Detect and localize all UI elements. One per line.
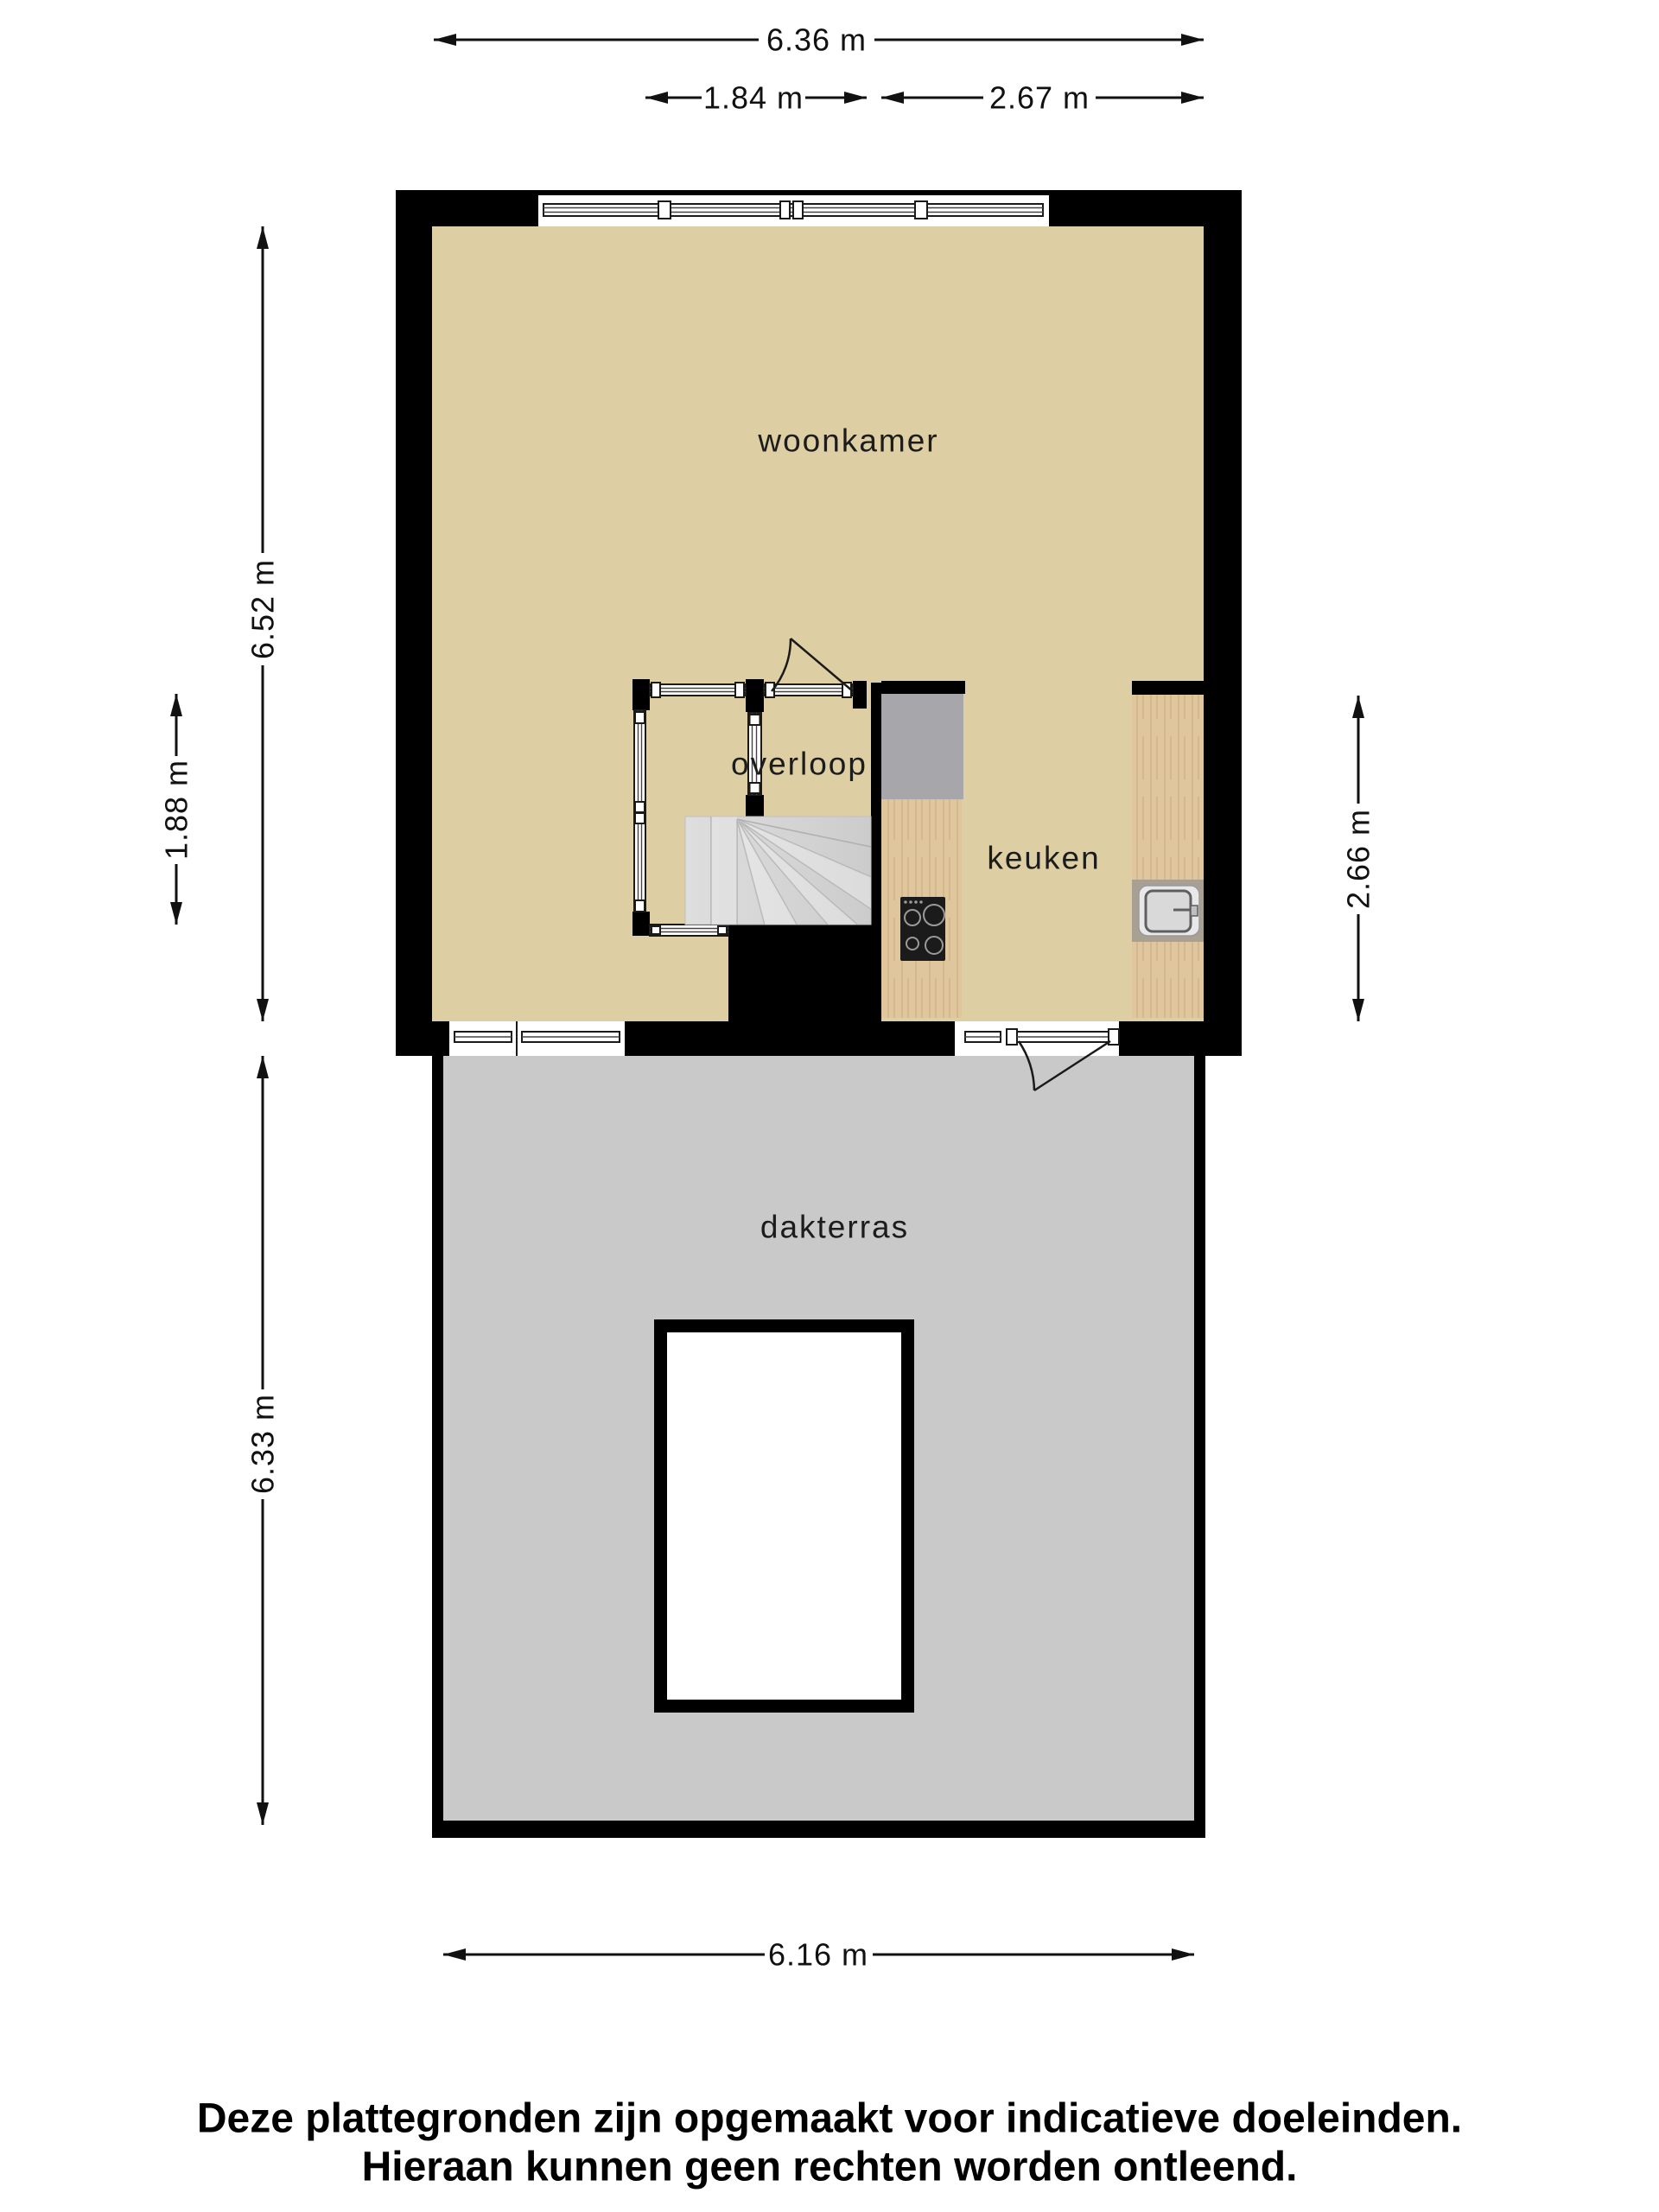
railing-post <box>853 681 867 709</box>
tall-cabinet <box>881 694 963 799</box>
dim-right-keuken: 2.66 m <box>1341 696 1376 1021</box>
dim-bottom-terrace: 6.16 m <box>443 1937 1194 1973</box>
window-mullion <box>780 201 790 219</box>
dim-left-overloop: 1.88 m <box>159 694 194 925</box>
window-mullion <box>658 201 671 219</box>
floorplan-page: woonkamer overloop keuken dakterras 6.36… <box>0 0 1659 2212</box>
staircase <box>685 817 871 925</box>
overloop-glass-door <box>764 684 853 696</box>
dim-label: 6.33 m <box>245 1394 281 1494</box>
dim-label: 6.36 m <box>766 22 867 58</box>
terrace-void <box>667 1332 901 1700</box>
window-mullion <box>915 201 927 219</box>
dim-top-keuken: 2.67 m <box>881 80 1204 116</box>
disclaimer-line-2: Hieraan kunnen geen rechten worden ontle… <box>362 2145 1298 2190</box>
floorplan-canvas: woonkamer overloop keuken dakterras 6.36… <box>0 0 1659 2212</box>
roof-terrace <box>432 1052 1205 1838</box>
dim-top-total: 6.36 m <box>434 22 1204 58</box>
wall-stub-left <box>881 681 965 694</box>
dim-top-overloop: 1.84 m <box>645 80 867 116</box>
counter-worktop <box>1132 695 1204 1018</box>
disclaimer-line-1: Deze plattegronden zijn opgemaakt voor i… <box>197 2096 1462 2142</box>
dim-label: 2.66 m <box>1341 809 1376 909</box>
window-mullion <box>793 201 803 219</box>
kitchen-counter-island <box>881 694 963 1018</box>
kitchen-counter-wall <box>1132 695 1204 1018</box>
room-label-keuken: keuken <box>987 841 1100 876</box>
dim-left-upper-floor: 6.52 m <box>245 226 281 1021</box>
dim-label: 1.88 m <box>159 760 194 860</box>
room-label-woonkamer: woonkamer <box>757 423 938 459</box>
railing-post <box>746 795 764 817</box>
window-top <box>538 195 1049 226</box>
window-bottom-left <box>449 1021 625 1056</box>
railing-post <box>746 679 764 712</box>
dim-left-terrace: 6.33 m <box>245 1056 281 1825</box>
dim-label: 2.67 m <box>989 80 1090 116</box>
dim-label: 6.52 m <box>245 559 281 659</box>
room-label-overloop: overloop <box>731 747 868 782</box>
room-label-dakterras: dakterras <box>760 1210 909 1245</box>
dim-label: 6.16 m <box>768 1937 868 1973</box>
dim-label: 1.84 m <box>703 80 804 116</box>
railing-post <box>632 912 650 936</box>
cooktop-icon <box>900 897 945 961</box>
sink-icon <box>1139 886 1199 936</box>
wall-stub-right <box>1132 681 1205 695</box>
stairwell-block <box>728 925 881 1021</box>
railing-post <box>632 679 650 710</box>
